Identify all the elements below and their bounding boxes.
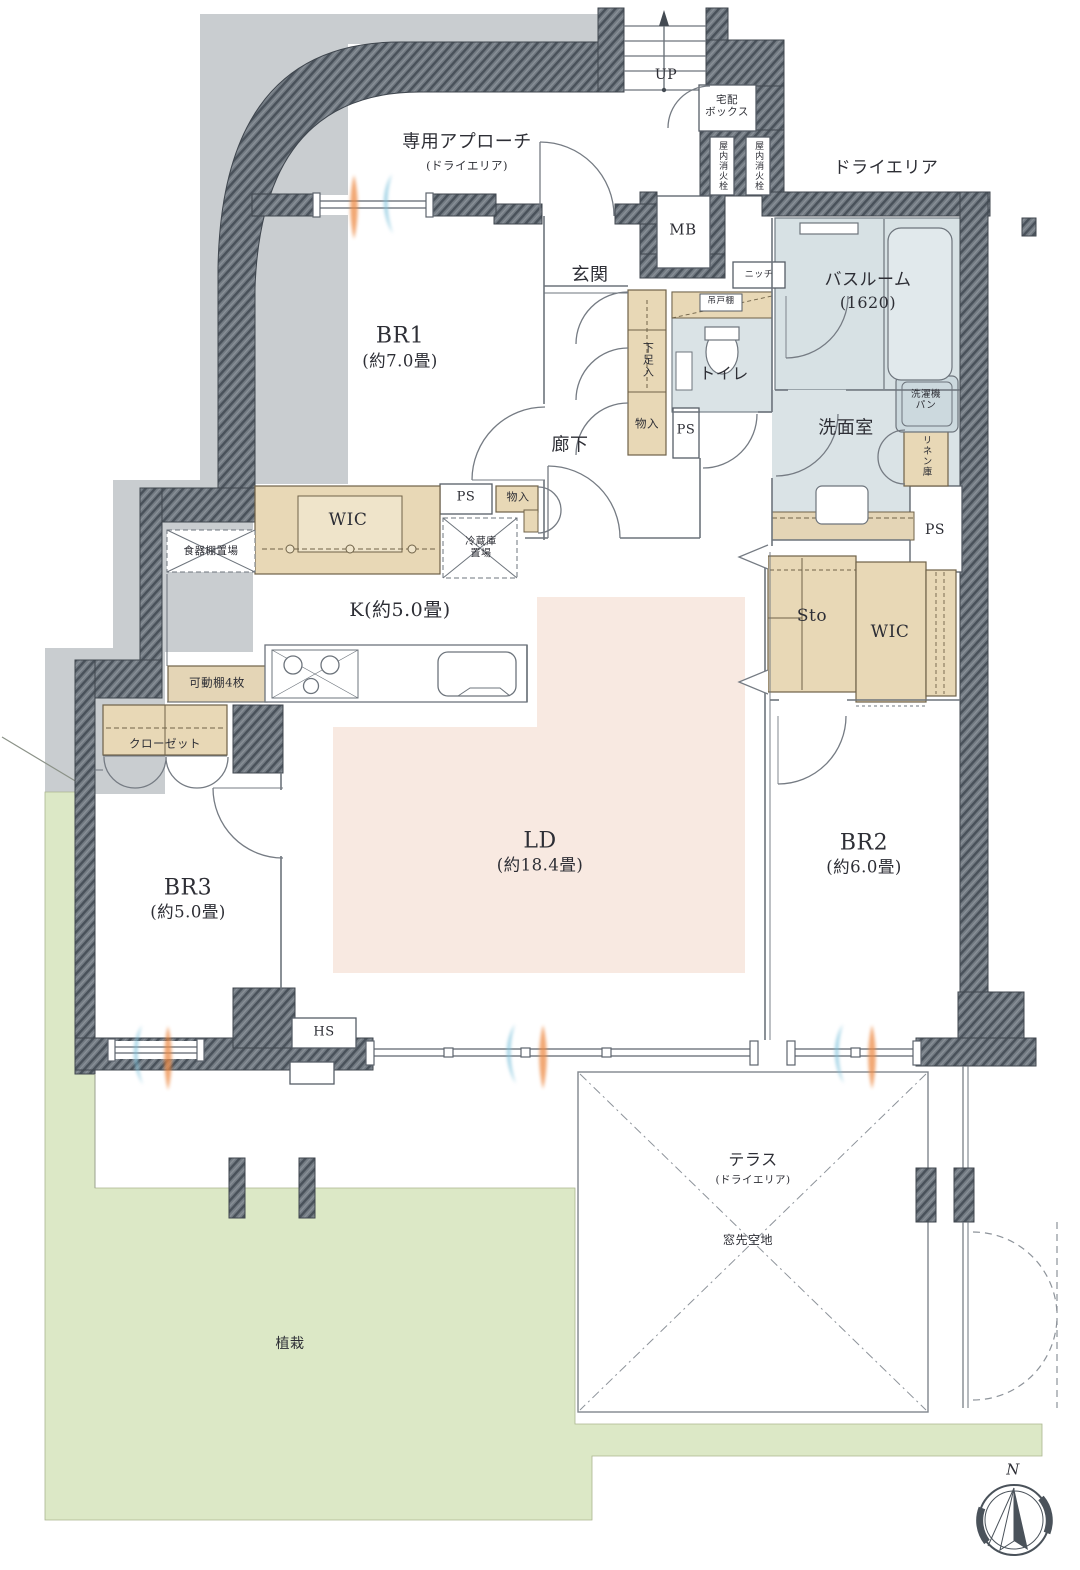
genkan-label: 玄関 [572,266,609,287]
terrace-note-label: (ドライエリア) [715,1174,790,1186]
dish-shelf-label: 食器棚置場 [184,545,239,557]
toilet-label: トイレ [699,365,749,383]
approach-note-label: (ドライエリア) [426,159,508,172]
br2-label: BR2 [840,830,888,855]
br2-size-label: (約6.0畳) [826,859,902,878]
meter-box-label: MB [669,221,696,238]
ps-label-3: PS [457,491,476,506]
br3-label: BR3 [164,875,212,900]
ld-size-label: (約18.4畳) [497,857,584,876]
ps-label-1: PS [677,424,696,439]
fridge-space-label: 冷蔵庫置場 [464,537,498,560]
wic-label-1: WIC [329,511,368,531]
shoe-box-label: 下足入 [641,342,654,378]
dry-area-label: ドライエリア [834,159,939,179]
linen-label: リネン庫 [920,435,931,477]
fire-hydrant-label-1: 屋内消火栓 [717,141,727,191]
bathroom-size-label: (1620) [840,294,896,312]
niche-label: ニッチ [745,270,774,280]
ps-label-2: PS [925,522,945,538]
compass-icon [979,1485,1049,1555]
washer-pan-label: 洗濯機パン [909,390,943,412]
kitchen-counter [265,645,527,702]
movable-shelf-label: 可動棚4枚 [189,676,245,689]
closet-label: クローゼット [129,737,201,750]
br3-size-label: (約5.0畳) [150,904,226,923]
wic-label-2: WIC [871,623,910,643]
approach-label: 専用アプローチ [402,133,532,154]
floor-plan: UP 宅配 ボックス 屋内消火栓 屋内消火栓 ドライエリア 専用アプローチ (ド… [0,0,1080,1570]
bathroom-label: バスルーム [825,271,912,291]
floor-plan-drawing [0,0,1080,1570]
planting-label: 植栽 [276,1336,305,1352]
terrace-label: テラス [728,1151,777,1169]
up-label: UP [655,67,677,83]
window-open-space-label: 窓先空地 [723,1234,773,1248]
hanging-cupboard-label: 吊戸棚 [707,297,734,307]
kitchen-label: K(約5.0畳) [349,600,450,622]
br1-size-label: (約7.0畳) [362,353,438,372]
ld-label: LD [523,828,556,853]
delivery-box-label: 宅配 ボックス [705,94,749,118]
washroom-label: 洗面室 [818,419,874,440]
corridor-label: 廊下 [552,436,589,457]
sto-label: Sto [797,607,827,627]
hs-label: HS [313,1026,334,1041]
north-label: N [1006,1461,1020,1478]
storage-small-label-2: 物入 [507,492,530,505]
fire-hydrant-label-2: 屋内消火栓 [753,141,763,191]
storage-small-label-1: 物入 [635,417,659,430]
br1-label: BR1 [376,323,424,348]
